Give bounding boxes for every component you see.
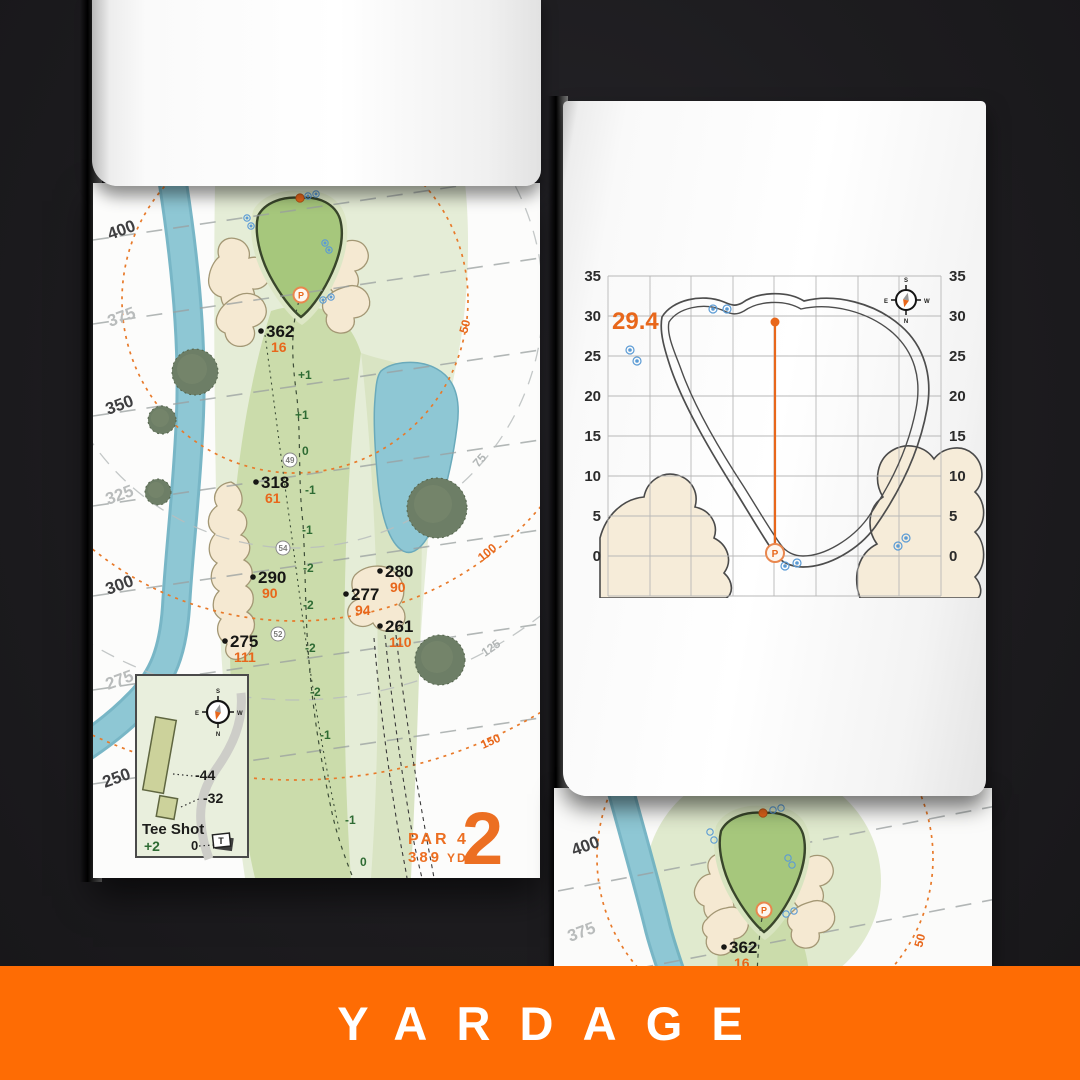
hole-map: P 400 375 350 325 300 275 250 [93,183,540,878]
elevation-mark: +1 [298,368,312,382]
distance-to-pin: 94 [355,602,371,618]
pin-marker-label: P [772,549,779,560]
elevation-mark: -2 [310,685,321,699]
green-depth-value: 29.4 [612,308,659,335]
distance-number: 389 [408,849,442,866]
yardage-banner: YARDAGE [0,966,1080,1080]
circled-mark-label: 54 [279,544,288,553]
elevation-mark: -1 [302,523,313,537]
tee-offset-long: -44 [195,767,215,783]
distance-to-pin: 61 [265,490,281,506]
tick-label: 35 [949,268,966,285]
distance-to-pin: 16 [734,955,750,966]
tick-label: 10 [584,468,601,485]
tick-label: 5 [593,508,601,525]
banner-label: YARDAGE [337,996,772,1051]
elevation-mark: -1 [345,813,356,827]
pin-reference-marker: P [294,288,309,303]
tick-label: 0 [593,548,601,565]
elevation-mark: -2 [305,641,316,655]
tick-label: 15 [584,428,601,445]
distance-to-pin: 90 [262,585,278,601]
tree [415,635,465,685]
distance-to-pin: 90 [390,579,406,595]
tree [148,406,176,434]
pin-reference-marker: P [757,903,772,918]
pin-reference-marker: P [766,544,784,562]
circled-mark: 54 [276,541,290,555]
back-edge-dot [759,809,767,817]
tick-label: 15 [949,428,966,445]
green-detail-page: 35 30 25 20 15 10 5 0 35 30 25 20 15 10 … [563,101,986,796]
depth-ticks-left: 35 30 25 20 15 10 5 0 [584,268,601,565]
compass-n: N [904,319,908,325]
depth-dot [771,318,780,327]
flipped-page-left [92,0,541,186]
elevation-mark: 0 [360,855,367,869]
tee-offset-short: -32 [203,790,223,806]
compass-w: W [237,711,243,717]
tick-label: 10 [949,468,966,485]
sprinkler-icon [626,346,641,365]
tree [407,478,467,538]
elevation-mark: -1 [305,483,316,497]
yardage-book-photo: P 400 375 350 325 300 275 250 [0,0,1080,1080]
pin-marker-label: P [761,906,767,916]
tick-label: 0 [949,548,957,565]
tick-label: 35 [584,268,601,285]
tick-label: 30 [584,308,601,325]
par-label: PAR 4 [408,831,469,848]
hole-map-page: P 400 375 350 325 300 275 250 [93,183,540,878]
circled-mark: 52 [271,627,285,641]
next-map: P 400 375 50 362 16 [558,796,992,966]
tick-label: 30 [949,308,966,325]
hole-number: 2 [462,797,503,878]
next-map-page: P 400 375 50 362 16 [554,788,992,966]
tee-inset-strokes: +2 [144,838,160,854]
compass-e: E [884,299,888,305]
forward-tee-box [156,796,177,820]
compass-w: W [924,299,930,305]
tick-label: 25 [949,348,966,365]
tick-label: 5 [949,508,957,525]
pin-marker-label: P [298,291,304,301]
tee-icon-letter: T [218,836,224,846]
compass-e: E [195,711,199,717]
green-detail: 35 30 25 20 15 10 5 0 35 30 25 20 15 10 … [563,101,986,796]
tick-label: 20 [584,388,601,405]
compass-s: S [216,689,220,695]
circled-mark-label: 52 [274,630,283,639]
elevation-mark: -2 [303,561,314,575]
circled-mark-label: 49 [286,456,295,465]
tick-label: 25 [584,348,601,365]
distance-to-pin: 111 [234,649,256,665]
tree [172,349,218,395]
distance-to-pin: 110 [389,634,412,650]
tee-inset-title: Tee Shot [142,821,204,838]
tick-label: 20 [949,388,966,405]
tree [145,479,171,505]
tee-zero: 0 [191,838,198,853]
circled-mark: 49 [283,453,297,467]
elevation-mark: 0 [302,444,309,458]
elevation-mark: -1 [320,728,331,742]
back-edge-dot [296,194,304,202]
elevation-mark: +1 [295,408,309,422]
distance-to-pin: 16 [271,339,287,355]
compass-n: N [216,732,220,738]
elevation-mark: -2 [303,598,314,612]
tee-shot-inset: S N W E -44 -32 Tee Shot +2 0 [136,675,248,859]
compass-s: S [904,278,908,284]
bunker [600,474,731,598]
